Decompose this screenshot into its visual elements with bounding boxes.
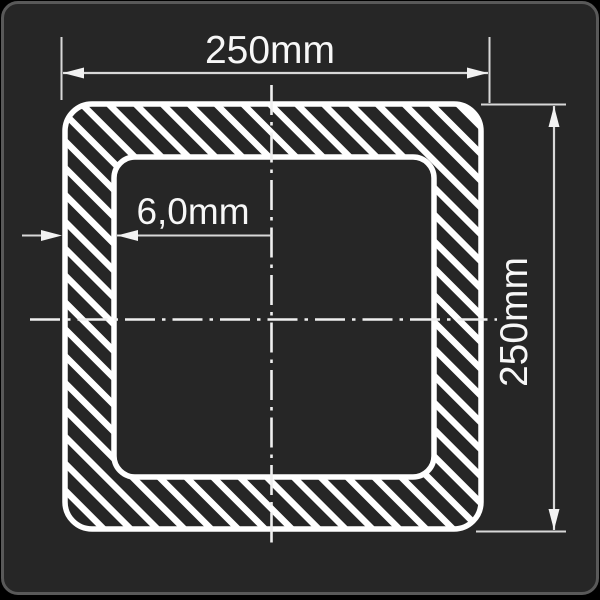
dimension-outer-height: 250mm bbox=[476, 105, 566, 532]
dim-label-wall-thickness: 6,0mm bbox=[136, 191, 249, 232]
drawing-canvas: 250mm 6,0mm 250mm bbox=[0, 0, 600, 600]
arrowhead-down-icon bbox=[549, 509, 560, 530]
arrowhead-right-icon bbox=[467, 68, 488, 79]
arrowhead-wall-outer-icon bbox=[41, 230, 62, 241]
dimension-outer-width: 250mm bbox=[62, 29, 490, 103]
dim-label-outer-height: 250mm bbox=[493, 257, 536, 387]
arrowhead-left-icon bbox=[63, 68, 84, 79]
tube-cross-section-diagram: 250mm 6,0mm 250mm bbox=[0, 0, 600, 600]
arrowhead-up-icon bbox=[549, 106, 560, 127]
dim-label-outer-width: 250mm bbox=[205, 29, 335, 72]
